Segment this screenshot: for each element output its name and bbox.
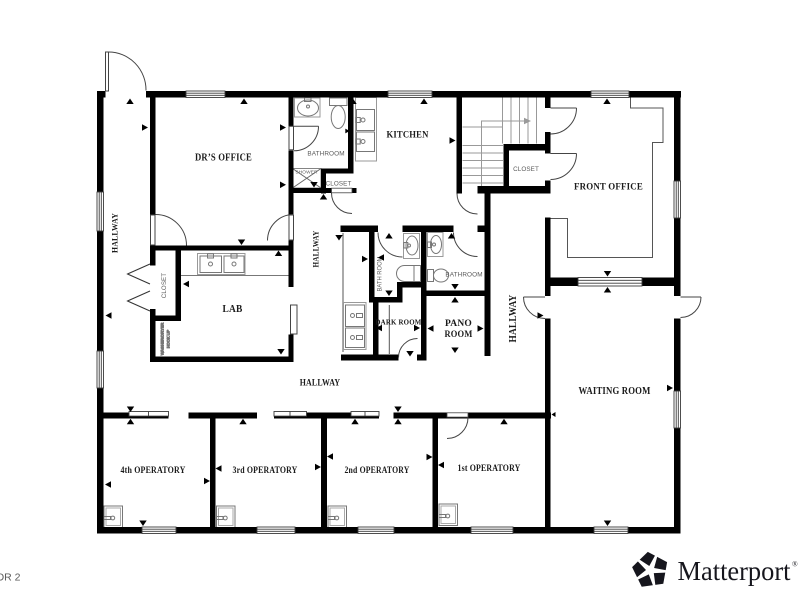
svg-text:SHOWER: SHOWER [295, 169, 318, 175]
svg-text:HALLWAY: HALLWAY [300, 378, 341, 388]
svg-text:3rd OPERATORY: 3rd OPERATORY [233, 466, 298, 476]
svg-text:CLOSET: CLOSET [161, 273, 168, 298]
svg-text:4th OPERATORY: 4th OPERATORY [121, 466, 186, 476]
svg-text:Matterport: Matterport [678, 556, 791, 586]
svg-text:KITCHEN: KITCHEN [387, 131, 429, 141]
svg-text:BATHROOM: BATHROOM [307, 151, 344, 158]
svg-text:FRONT OFFICE: FRONT OFFICE [574, 182, 643, 192]
svg-text:ROOM: ROOM [445, 330, 473, 340]
svg-text:DR’S OFFICE: DR’S OFFICE [195, 153, 252, 164]
svg-text:1st OPERATORY: 1st OPERATORY [458, 464, 521, 474]
svg-text:BATH ROOM: BATH ROOM [377, 257, 384, 292]
svg-text:LAB: LAB [223, 304, 243, 315]
svg-text:PANO: PANO [445, 319, 472, 329]
svg-text:WAITING ROOM: WAITING ROOM [579, 386, 651, 397]
svg-text:HALLWAY: HALLWAY [111, 213, 120, 253]
svg-text:®: ® [792, 560, 798, 569]
svg-text:CLOSET: CLOSET [513, 166, 539, 173]
svg-text:HALLWAY: HALLWAY [508, 294, 519, 343]
svg-text:BATHROOM: BATHROOM [445, 272, 482, 279]
svg-text:CLOSET: CLOSET [326, 181, 352, 188]
svg-text:2nd OPERATORY: 2nd OPERATORY [345, 466, 410, 476]
svg-text:WASHER/DRYER: WASHER/DRYER [160, 323, 165, 356]
svg-text:HOOK UP: HOOK UP [166, 329, 171, 348]
svg-text:HALLWAY: HALLWAY [312, 230, 321, 267]
svg-text:FLOOR 2: FLOOR 2 [0, 572, 21, 584]
